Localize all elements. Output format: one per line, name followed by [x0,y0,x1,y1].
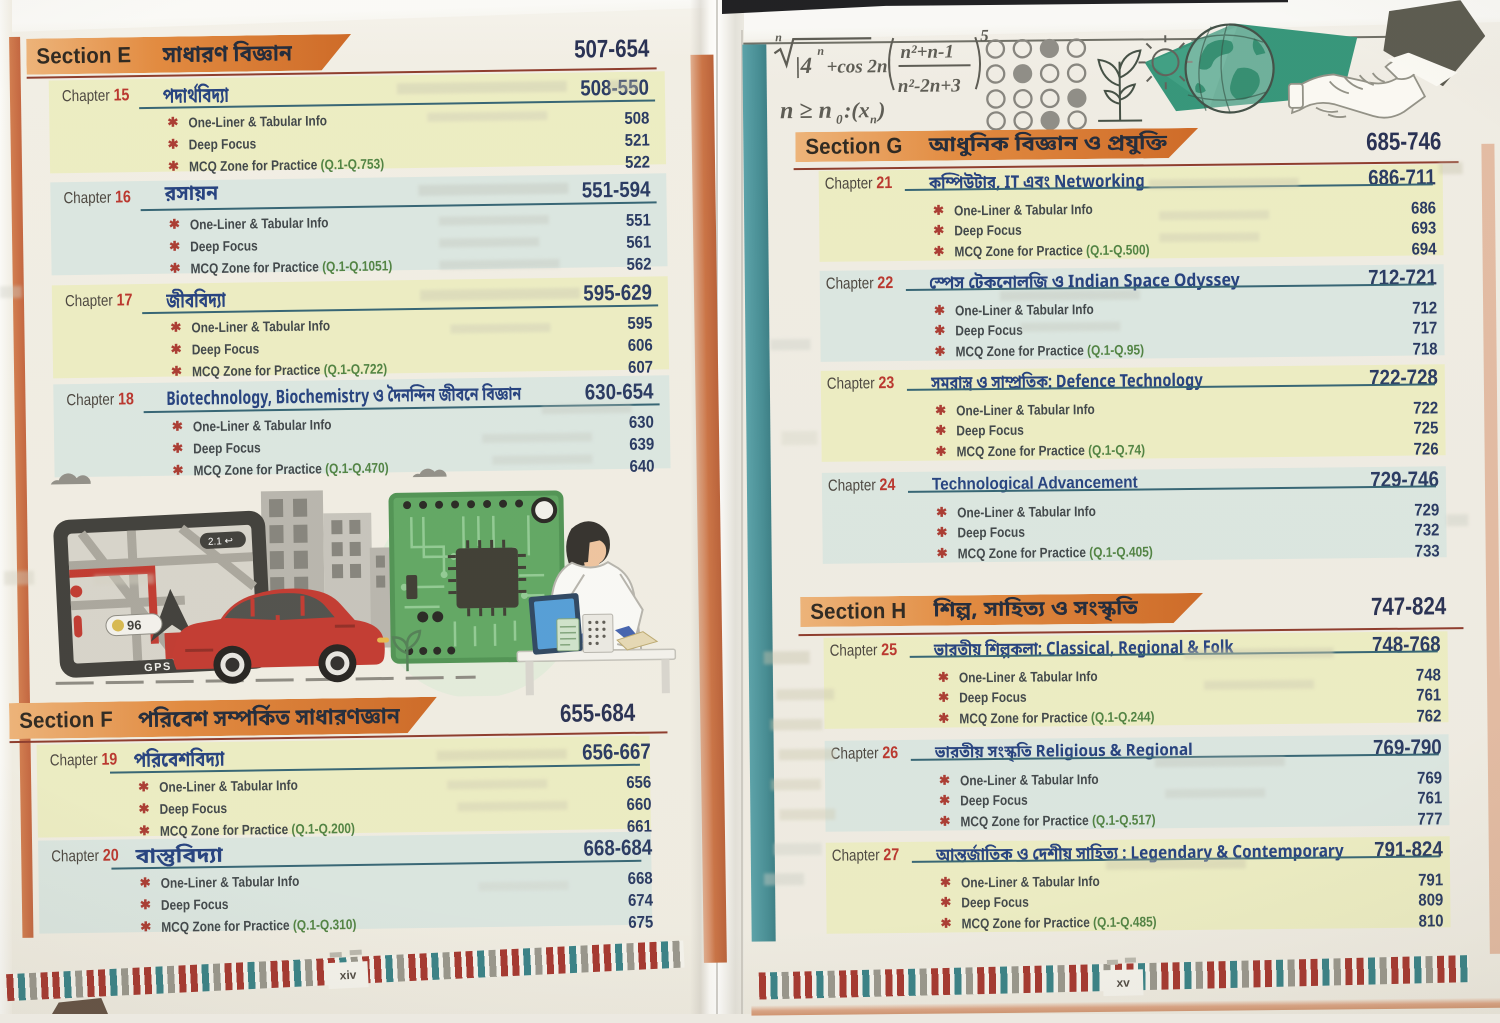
svg-text:0: 0 [836,112,843,127]
svg-text:5: 5 [980,26,989,45]
svg-text:n²-2n+3: n²-2n+3 [898,75,961,97]
svg-text::(x: :(x [844,97,870,122]
svg-text:n: n [775,30,782,44]
svg-text:n²+n-1: n²+n-1 [900,41,954,63]
svg-text:n ≥ n: n ≥ n [780,98,832,125]
svg-text:|4: |4 [795,53,812,78]
svg-text:): ) [876,97,886,122]
svg-text:+cos 2n|: +cos 2n| [826,56,891,78]
svg-text:n: n [817,44,824,58]
svg-text:n: n [870,112,877,126]
